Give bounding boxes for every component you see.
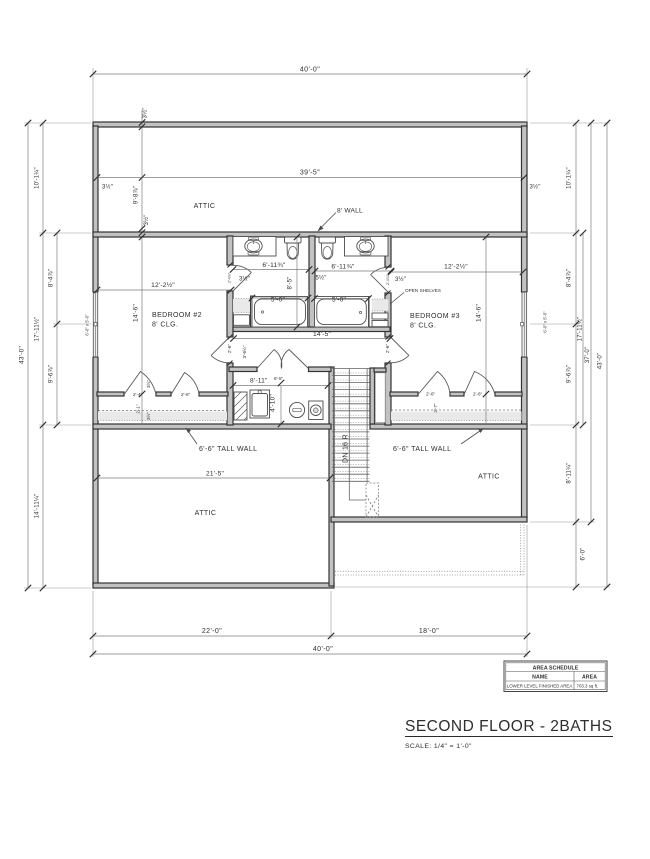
svg-text:8'-11¼": 8'-11¼" [567, 462, 573, 483]
svg-text:39'-5": 39'-5" [300, 170, 320, 177]
svg-text:9'-6⅞": 9'-6⅞" [567, 365, 573, 383]
svg-text:2'-4⅞": 2'-4⅞" [228, 272, 232, 283]
svg-text:9'-6⅞": 9'-6⅞" [49, 365, 55, 383]
svg-text:3½": 3½" [395, 276, 406, 283]
svg-text:3½": 3½" [145, 412, 151, 420]
svg-text:8' CLG.: 8' CLG. [410, 323, 436, 330]
svg-text:2'-7": 2'-7" [433, 403, 438, 413]
svg-text:2'-4": 2'-4" [133, 392, 143, 397]
svg-text:9'-8⅞": 9'-8⅞" [134, 186, 140, 204]
svg-text:AREA: AREA [582, 675, 597, 681]
svg-text:2'-1": 2'-1" [136, 404, 141, 414]
svg-text:3½": 3½" [239, 276, 250, 283]
svg-text:LOWER LEVEL FINISHED AREA: LOWER LEVEL FINISHED AREA [507, 684, 573, 689]
svg-text:3½": 3½" [145, 380, 151, 388]
svg-text:21'-5": 21'-5" [206, 471, 224, 478]
svg-text:40'-0": 40'-0" [313, 646, 333, 653]
svg-text:AREA SCHEDULE: AREA SCHEDULE [533, 665, 579, 671]
svg-text:14'-11¼": 14'-11¼" [35, 494, 41, 519]
svg-text:8'-11": 8'-11" [250, 378, 268, 385]
svg-text:4'-10": 4'-10" [270, 394, 277, 412]
svg-text:BEDROOM #3: BEDROOM #3 [410, 313, 460, 320]
svg-text:43'-0": 43'-0" [598, 353, 604, 369]
svg-text:17'-11½": 17'-11½" [577, 317, 584, 342]
svg-text:14'-6": 14'-6" [476, 304, 483, 322]
svg-text:3½": 3½" [143, 214, 150, 225]
svg-text:12'-2½": 12'-2½" [151, 281, 175, 289]
svg-text:3'-6½": 3'-6½" [241, 345, 247, 358]
svg-text:43'-0": 43'-0" [19, 346, 26, 364]
svg-text:2'-6": 2'-6" [181, 392, 191, 397]
svg-text:DN 16 R: DN 16 R [343, 434, 350, 463]
svg-text:8'-5": 8'-5" [288, 277, 294, 290]
svg-text:6'-6" TALL WALL: 6'-6" TALL WALL [393, 446, 451, 453]
svg-text:5'-0": 5'-0" [271, 297, 286, 304]
svg-text:5'-0": 5'-0" [332, 297, 347, 304]
svg-text:37'-0": 37'-0" [585, 347, 591, 363]
svg-text:BEDROOM #2: BEDROOM #2 [152, 312, 202, 319]
svg-text:2'-6": 2'-6" [426, 392, 436, 397]
svg-text:17'-11½": 17'-11½" [34, 317, 41, 342]
svg-text:6'-0" x 5'-0": 6'-0" x 5'-0" [543, 311, 548, 333]
svg-text:ATTIC: ATTIC [478, 474, 500, 481]
svg-text:18'-0": 18'-0" [419, 628, 439, 635]
svg-text:8' WALL: 8' WALL [337, 208, 363, 215]
svg-text:SECOND FLOOR - 2BATHS: SECOND FLOOR - 2BATHS [405, 718, 612, 735]
svg-text:10'-1¼": 10'-1¼" [35, 167, 41, 189]
svg-text:8' CLG.: 8' CLG. [152, 322, 178, 329]
svg-text:8'-4⅞": 8'-4⅞" [567, 269, 573, 287]
svg-text:10'-1¼": 10'-1¼" [567, 167, 573, 189]
svg-text:2'-4⅞": 2'-4⅞" [386, 274, 390, 285]
svg-text:2'-6": 2'-6" [473, 392, 483, 397]
svg-text:40'-0": 40'-0" [300, 67, 320, 74]
svg-text:6'-11¾": 6'-11¾" [262, 262, 286, 269]
svg-text:6'-11¾": 6'-11¾" [331, 264, 355, 271]
svg-text:6'-6" TALL WALL: 6'-6" TALL WALL [199, 446, 257, 453]
svg-text:3½": 3½" [142, 107, 149, 118]
svg-text:3½": 3½" [102, 184, 113, 191]
svg-text:14'-6": 14'-6" [133, 304, 140, 322]
svg-text:3½": 3½" [530, 184, 541, 191]
svg-text:5½": 5½" [316, 275, 327, 282]
svg-text:8'-4⅞": 8'-4⅞" [49, 269, 55, 287]
svg-text:OPEN SHELVES: OPEN SHELVES [405, 288, 441, 293]
svg-text:SCALE: 1/4" = 1'-0": SCALE: 1/4" = 1'-0" [405, 743, 472, 750]
svg-text:2'-6": 2'-6" [385, 344, 390, 354]
svg-text:ATTIC: ATTIC [195, 510, 217, 517]
svg-text:12'-2½": 12'-2½" [444, 263, 468, 271]
svg-text:NAME: NAME [532, 675, 548, 681]
svg-text:14'-5": 14'-5" [313, 331, 331, 338]
svg-text:6'-0" x 5'-0": 6'-0" x 5'-0" [85, 314, 90, 336]
svg-text:2'-6": 2'-6" [227, 344, 232, 354]
svg-text:ATTIC: ATTIC [194, 203, 216, 210]
svg-text:6'-5": 6'-5" [274, 376, 284, 381]
svg-text:703.3 sq ft.: 703.3 sq ft. [577, 684, 599, 689]
svg-text:6'-0": 6'-0" [581, 548, 587, 561]
svg-text:22'-0": 22'-0" [202, 628, 222, 635]
